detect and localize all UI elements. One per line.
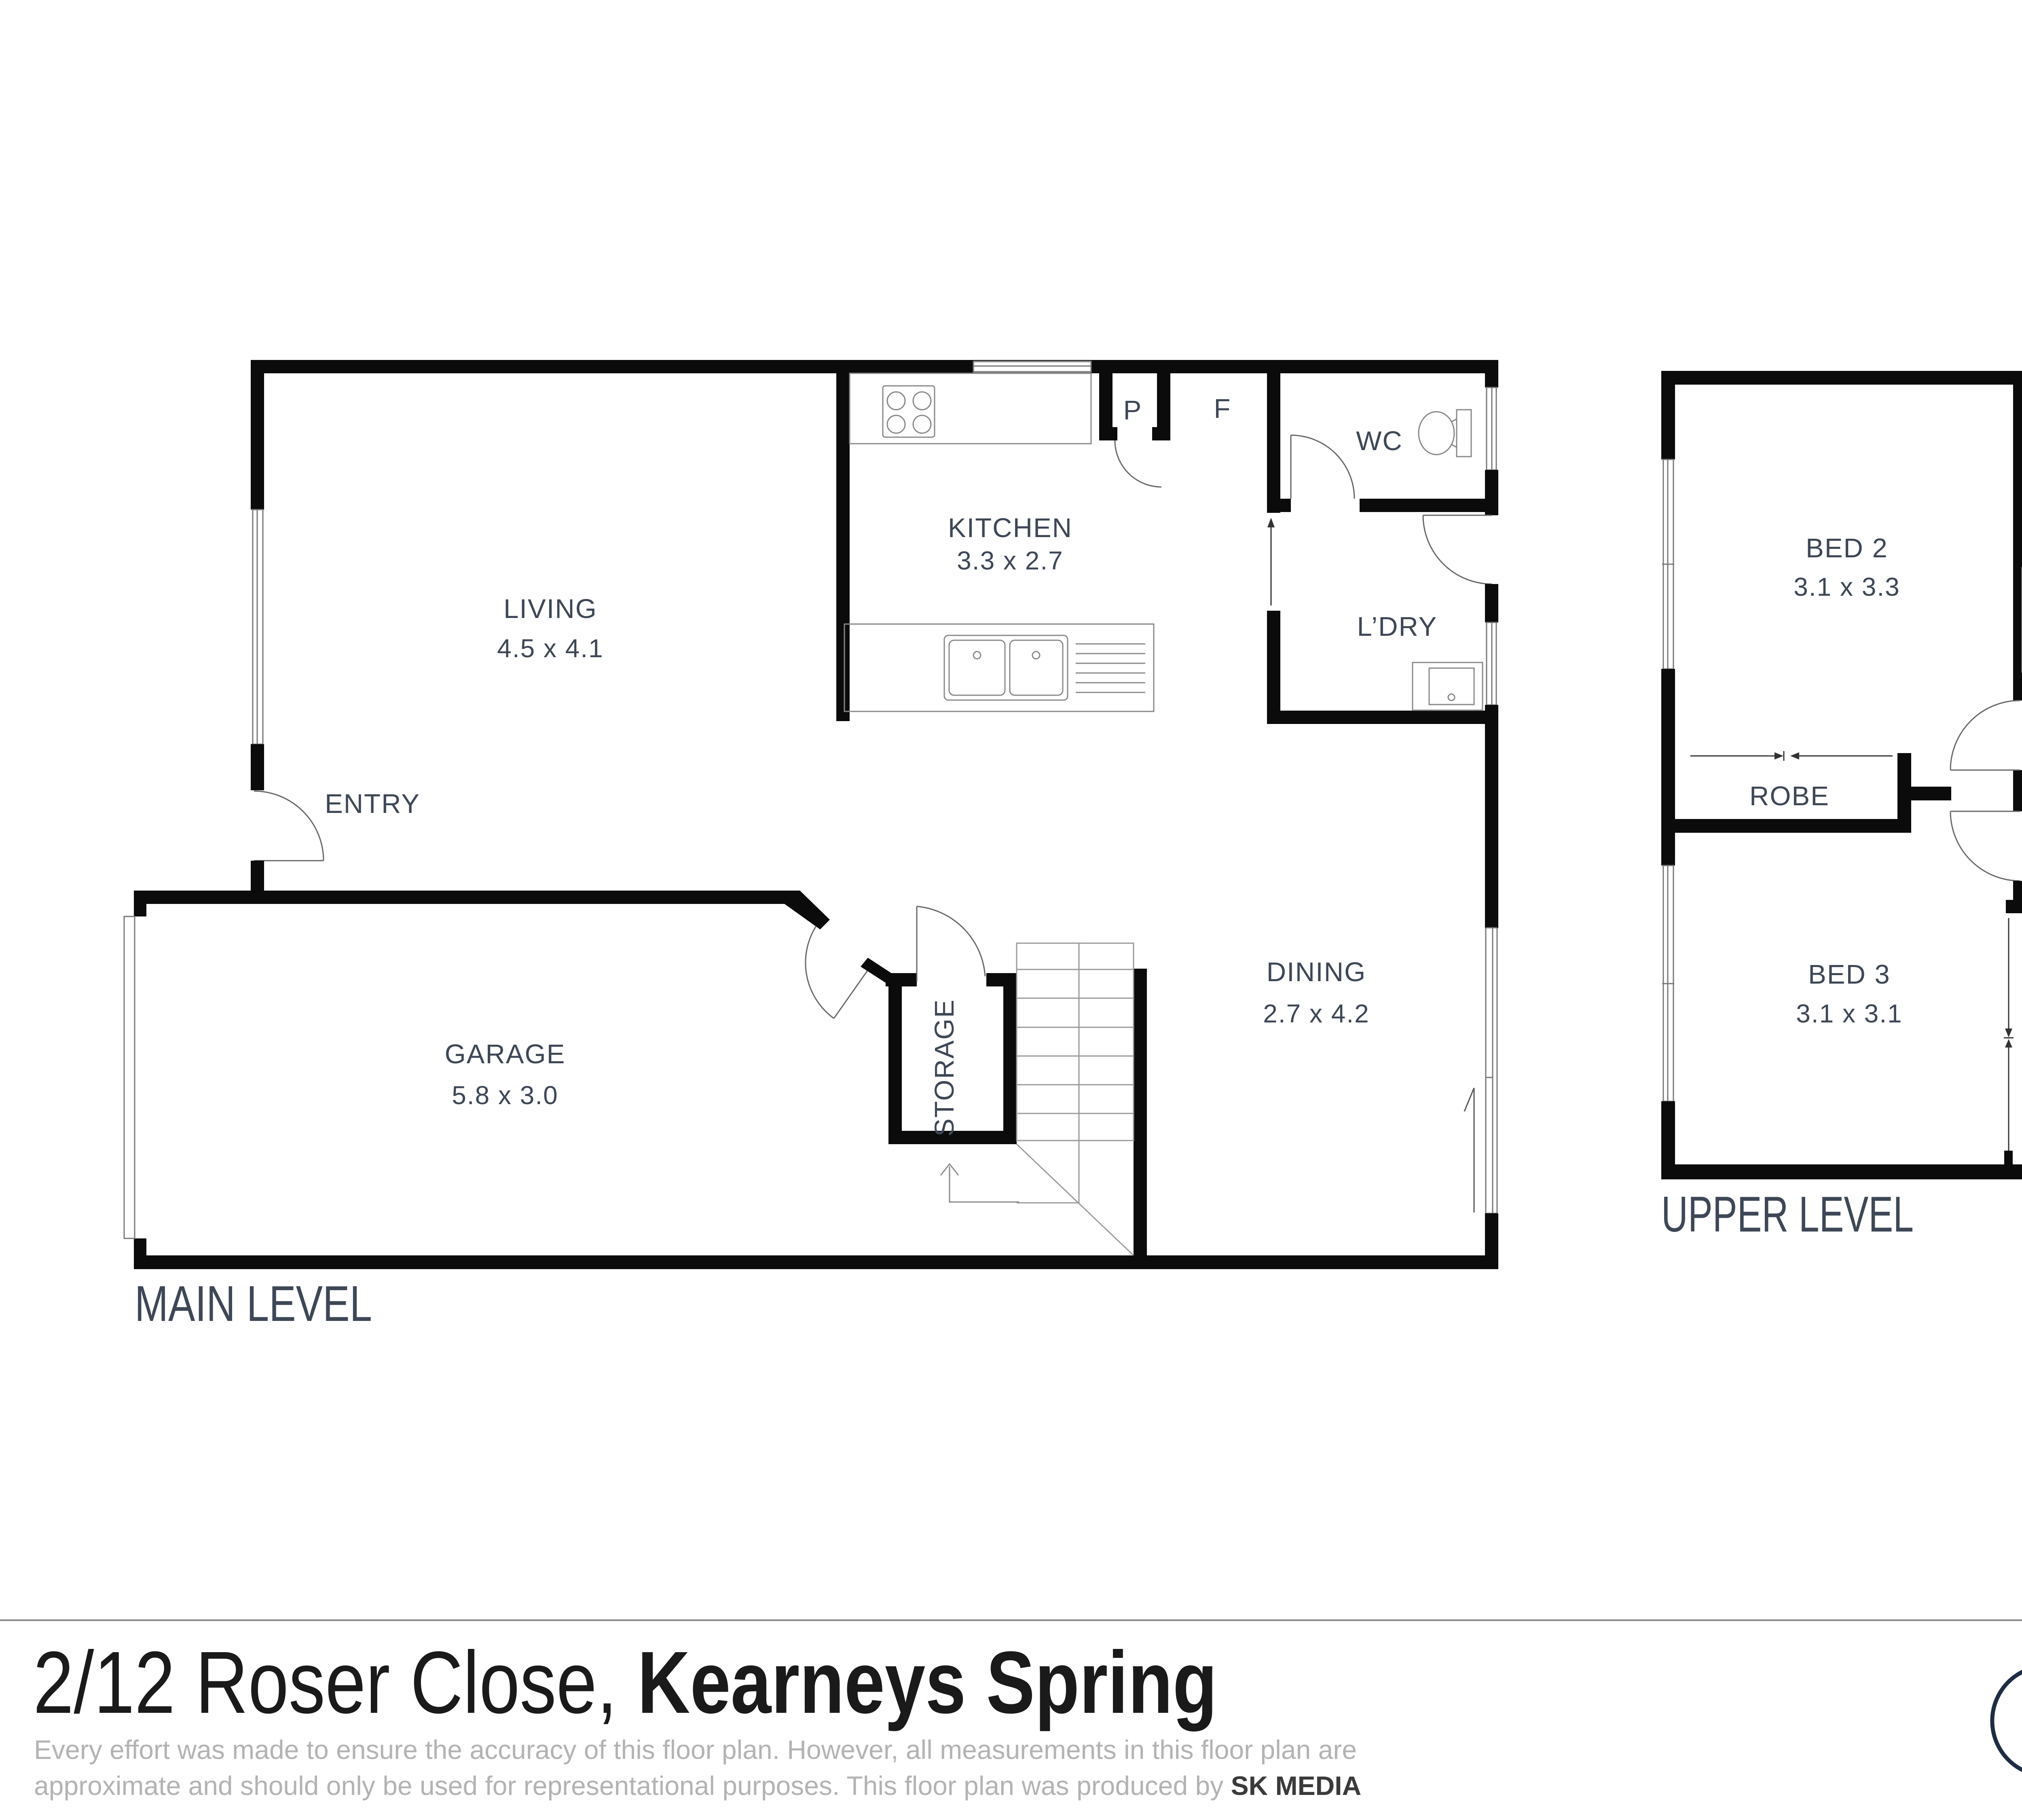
svg-text:DINING: DINING [1267,957,1366,987]
svg-text:STORAGE: STORAGE [929,999,960,1136]
svg-text:ROBE: ROBE [2020,998,2022,1073]
svg-text:KITCHEN: KITCHEN [948,513,1072,543]
svg-text:GARAGE: GARAGE [445,1039,566,1069]
svg-text:2/12 Roser Close, Kearneys Spr: 2/12 Roser Close, Kearneys Spring [33,1634,1217,1732]
svg-text:3.3 x 2.7: 3.3 x 2.7 [957,546,1064,575]
svg-text:ENTRY: ENTRY [325,789,420,819]
svg-text:BED 3: BED 3 [1808,959,1891,990]
svg-text:Every effort was made to ensur: Every effort was made to ensure the accu… [34,1735,1357,1765]
svg-text:MAIN LEVEL: MAIN LEVEL [135,1276,372,1332]
svg-text:BED 2: BED 2 [1806,533,1888,563]
svg-text:WC: WC [1356,426,1403,456]
svg-text:approximate and should only be: approximate and should only be used for … [34,1771,1361,1801]
svg-text:P: P [1123,395,1142,425]
svg-text:ROBE: ROBE [1749,781,1830,811]
svg-text:3.1 x 3.3: 3.1 x 3.3 [1794,572,1900,601]
svg-text:UPPER LEVEL: UPPER LEVEL [1661,1187,1914,1242]
svg-text:4.5 x 4.1: 4.5 x 4.1 [497,634,604,663]
svg-text:F: F [1214,394,1231,424]
svg-text:3.1 x 3.1: 3.1 x 3.1 [1796,999,1903,1028]
svg-text:5.8 x 3.0: 5.8 x 3.0 [452,1081,558,1110]
svg-text:L’DRY: L’DRY [1357,612,1438,642]
svg-text:2.7 x 4.2: 2.7 x 4.2 [1263,999,1370,1028]
svg-text:LIVING: LIVING [503,594,597,624]
